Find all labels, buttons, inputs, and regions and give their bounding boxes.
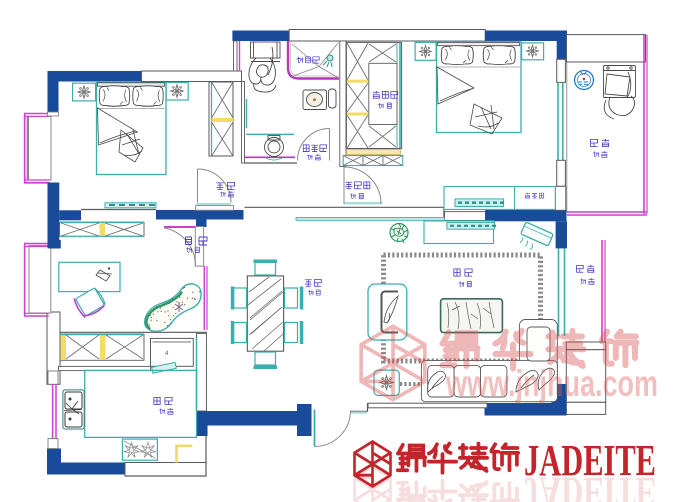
svg-text:www.jnjhua.com: www.jnjhua.com: [445, 363, 658, 404]
svg-text:JADEITE: JADEITE: [524, 468, 656, 502]
